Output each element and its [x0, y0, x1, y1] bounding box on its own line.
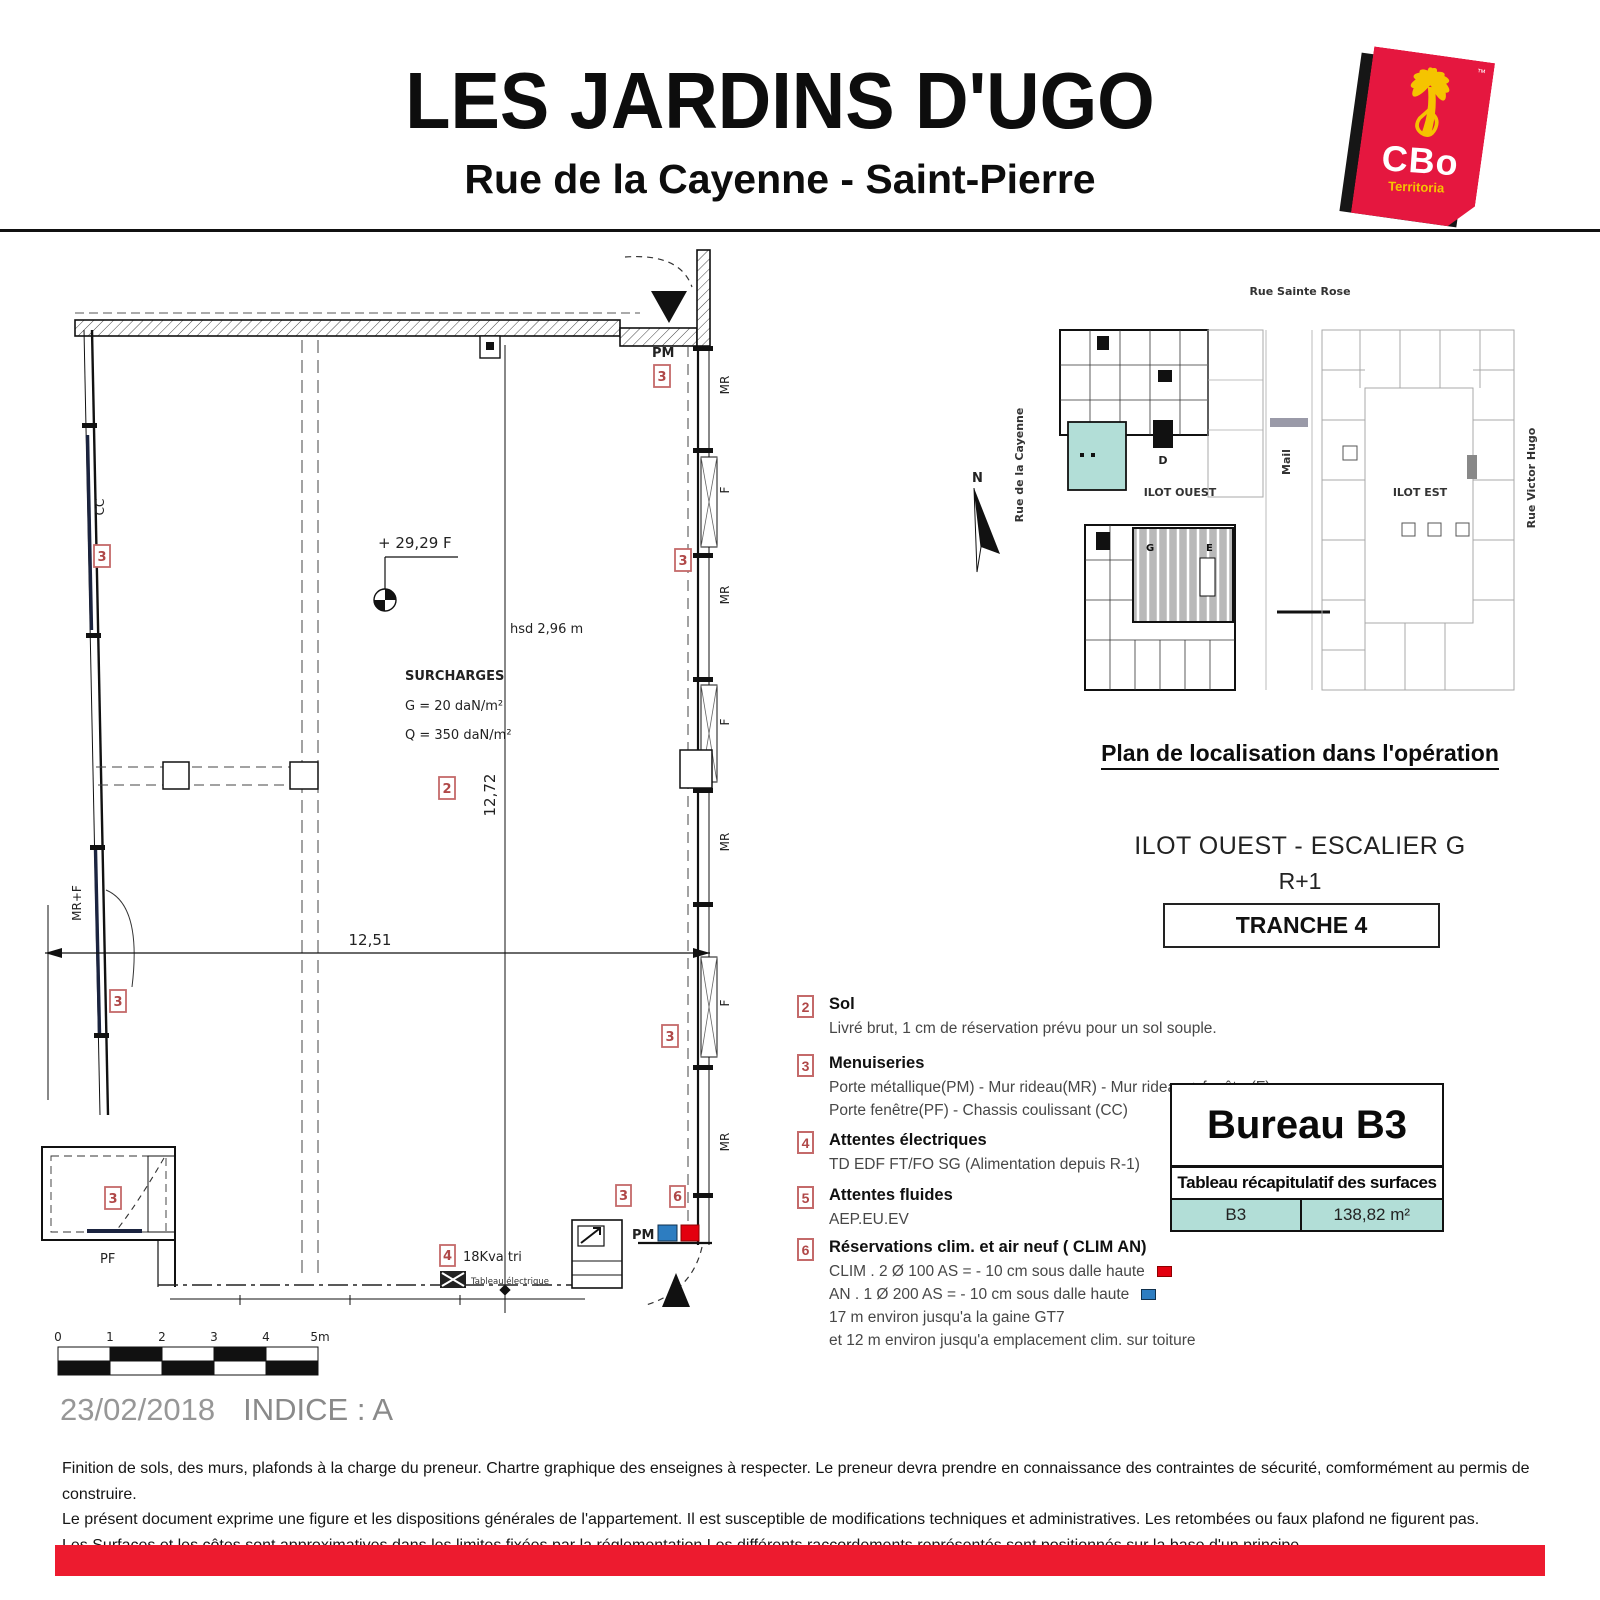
svg-text:SURCHARGES: SURCHARGES: [405, 669, 504, 684]
top-wall: [75, 313, 697, 358]
clim-red-swatch: [1157, 1266, 1172, 1277]
surface-table: Bureau B3 Tableau récapitulatif des surf…: [1170, 1083, 1444, 1232]
entry-arrow-icon: [651, 291, 687, 323]
legend-num: 6: [797, 1238, 814, 1261]
legend-num: 4: [797, 1131, 814, 1154]
floor-plan-drawing: PM 3: [40, 245, 760, 1385]
surface-table-title: Bureau B3: [1172, 1085, 1442, 1168]
legend-line: Livré brut, 1 cm de réservation prévu po…: [829, 1017, 1217, 1040]
street-top: Rue Sainte Rose: [1249, 285, 1350, 298]
logo-subname: Territoria: [1388, 179, 1445, 196]
balcony: 3 PF: [42, 1147, 175, 1287]
svg-text:2: 2: [442, 782, 451, 797]
tableau-label: Tableau électrique: [470, 1276, 549, 1287]
legend-note: 17 m environ jusqu'a la gaine GT7: [829, 1306, 1196, 1329]
label-mr-1: MR: [718, 376, 732, 395]
label-mr-3: MR: [718, 833, 732, 852]
page-subtitle: Rue de la Cayenne - Saint-Pierre: [80, 156, 1480, 203]
logo-name: CBo: [1380, 137, 1460, 184]
tranche-box: TRANCHE 4: [1163, 903, 1440, 948]
an-reservation-swatch: [658, 1225, 677, 1241]
label-mr-2: MR: [718, 586, 732, 605]
mail-label: Mail: [1280, 449, 1293, 475]
svg-text:3: 3: [108, 1192, 117, 1207]
footer-red-bar: [55, 1545, 1545, 1576]
ilot-est-label: ILOT EST: [1393, 486, 1448, 499]
svg-text:3: 3: [678, 554, 687, 569]
palm-tree-icon: [1386, 56, 1471, 149]
legend-item-sol: 2 Sol Livré brut, 1 cm de réservation pr…: [797, 995, 1217, 1040]
wall-break-box: [680, 750, 712, 788]
disclaimer-line: Le présent document exprime une figure e…: [62, 1507, 1552, 1533]
kva-label: 18Kva tri: [463, 1250, 522, 1265]
legend-title: Réservations clim. et air neuf ( CLIM AN…: [829, 1238, 1196, 1257]
label-mr-4: MR: [718, 1133, 732, 1152]
surcharges-note: SURCHARGES G = 20 daN/m² Q = 350 daN/m²: [405, 669, 512, 743]
ilot-ouest-buildings: D ILOT OUEST G E: [1060, 330, 1263, 690]
svg-text:3: 3: [665, 1030, 674, 1045]
pm-top-label: PM: [652, 346, 674, 361]
svg-text:5m: 5m: [310, 1330, 329, 1344]
legend-num: 3: [797, 1054, 814, 1077]
surface-table-header: Tableau récapitulatif des surfaces: [1172, 1168, 1442, 1200]
legend-note: et 12 m environ jusqu'a emplacement clim…: [829, 1329, 1196, 1352]
bottom-wall: [158, 1285, 600, 1305]
svg-text:3: 3: [619, 1189, 628, 1204]
scale-bar: 0 1 2 3 4 5m: [54, 1330, 329, 1375]
legend-title: Attentes fluides: [829, 1186, 953, 1205]
entry-arrow-icon: [662, 1273, 690, 1307]
location-caption: Plan de localisation dans l'opération: [1050, 740, 1550, 767]
indice-label: INDICE : A: [243, 1392, 393, 1427]
ilot-est-buildings: [1322, 330, 1514, 690]
bldg-g-label: G: [1146, 543, 1154, 554]
marker-3: 3: [616, 1185, 631, 1206]
dimension-height: 12,72: [481, 345, 511, 1313]
bldg-d-label: D: [1158, 454, 1167, 467]
surface-area-cell: 138,82 m²: [1302, 1200, 1442, 1230]
svg-text:3: 3: [210, 1330, 218, 1344]
marker-3: 3: [675, 549, 691, 571]
legend-item-electriques: 4 Attentes électriques TD EDF FT/FO SG (…: [797, 1131, 1140, 1176]
legend-line-an: AN . 1 Ø 200 AS = - 10 cm sous dalle hau…: [829, 1283, 1196, 1306]
location-plan: Rue Sainte Rose Rue de la Cayenne N D IL…: [950, 270, 1550, 710]
table-row: B3 138,82 m²: [1172, 1200, 1442, 1230]
svg-text:4: 4: [262, 1330, 270, 1344]
level-mark: + 29,29 F: [374, 534, 458, 611]
label-f-2: F: [718, 718, 732, 725]
marker-3: 3: [662, 1025, 678, 1047]
dimension-width: 12,51: [45, 905, 710, 1100]
legend-item-clim: 6 Réservations clim. et air neuf ( CLIM …: [797, 1238, 1196, 1352]
floorplan-document: LES JARDINS D'UGO Rue de la Cayenne - Sa…: [0, 0, 1600, 1600]
legend-line: TD EDF FT/FO SG (Alimentation depuis R-1…: [829, 1153, 1140, 1176]
svg-text:Q = 350 daN/m²: Q = 350 daN/m²: [405, 728, 512, 743]
marker-3: 3: [94, 545, 110, 567]
legend-item-fluides: 5 Attentes fluides AEP.EU.EV: [797, 1186, 953, 1231]
surface-unit-cell: B3: [1172, 1200, 1302, 1230]
legend-title: Menuiseries: [829, 1054, 1270, 1073]
legend-line: AEP.EU.EV: [829, 1208, 953, 1231]
interior-partitions: [96, 340, 318, 1280]
marker-4: 4: [440, 1245, 455, 1266]
svg-text:3: 3: [657, 370, 666, 385]
hsd-label: hsd 2,96 m: [510, 622, 583, 637]
label-pf: PF: [100, 1252, 115, 1267]
logo-card: ™ CBo Territoria: [1351, 46, 1495, 229]
electrical-note: 4 18Kva tri Tableau électrique: [440, 1245, 549, 1288]
svg-text:3: 3: [113, 995, 122, 1010]
right-wall: MR F MR F MR F MR 3 3: [662, 346, 732, 1245]
legend-title: Attentes électriques: [829, 1131, 1140, 1150]
north-label: N: [972, 471, 983, 486]
escalier-label: ILOT OUEST - ESCALIER G: [1050, 832, 1550, 861]
street-left: Rue de la Cayenne: [1013, 408, 1026, 523]
marker-2: 2: [439, 777, 455, 799]
svg-text:6: 6: [673, 1190, 682, 1205]
svg-text:4: 4: [443, 1249, 452, 1264]
label-cc: CC: [93, 499, 107, 516]
cbo-territoria-logo: ™ CBo Territoria: [1344, 48, 1514, 233]
legend-title: Sol: [829, 995, 1217, 1014]
unit-b3-highlight: [1068, 422, 1126, 490]
marker-3: 3: [110, 990, 126, 1012]
page-title: LES JARDINS D'UGO: [80, 55, 1480, 147]
svg-text:G = 20 daN/m²: G = 20 daN/m²: [405, 699, 503, 714]
compass-icon: [974, 488, 1000, 572]
ilot-ouest-label: ILOT OUEST: [1144, 486, 1217, 499]
clim-reservation-swatch: [681, 1225, 699, 1241]
footer-date: 23/02/2018INDICE : A: [60, 1392, 393, 1428]
svg-text:12,51: 12,51: [349, 931, 392, 949]
bottom-entrance: 3 6 PM: [572, 1185, 712, 1307]
marker-3: 3: [654, 365, 670, 387]
label-f-1: F: [718, 486, 732, 493]
svg-text:0: 0: [54, 1330, 62, 1344]
svg-text:2: 2: [158, 1330, 166, 1344]
disclaimer-line: Finition de sols, des murs, plafonds à l…: [62, 1456, 1552, 1507]
svg-text:+ 29,29 F: + 29,29 F: [378, 534, 452, 552]
pm-bottom-label: PM: [632, 1228, 654, 1243]
label-mrf: MR+F: [70, 885, 84, 921]
date-label: 23/02/2018: [60, 1392, 215, 1427]
svg-text:3: 3: [97, 550, 106, 565]
bldg-e-label: E: [1206, 543, 1213, 554]
svg-text:1: 1: [106, 1330, 114, 1344]
an-blue-swatch: [1141, 1289, 1156, 1300]
logo-tm: ™: [1476, 67, 1486, 78]
legend-line-clim: CLIM . 2 Ø 100 AS = - 10 cm sous dalle h…: [829, 1260, 1196, 1283]
svg-text:12,72: 12,72: [481, 774, 499, 817]
legend-num: 5: [797, 1186, 814, 1209]
disclaimer: Finition de sols, des murs, plafonds à l…: [62, 1456, 1552, 1558]
street-right: Rue Victor Hugo: [1525, 427, 1538, 528]
label-f-3: F: [718, 999, 732, 1006]
niveau-label: R+1: [1050, 868, 1550, 895]
legend-num: 2: [797, 995, 814, 1018]
marker-6: 6: [670, 1186, 685, 1207]
mail-strip: Mail: [1266, 330, 1330, 690]
left-wall: CC 3 MR+F 3: [70, 330, 134, 1115]
marker-3: 3: [105, 1187, 121, 1209]
